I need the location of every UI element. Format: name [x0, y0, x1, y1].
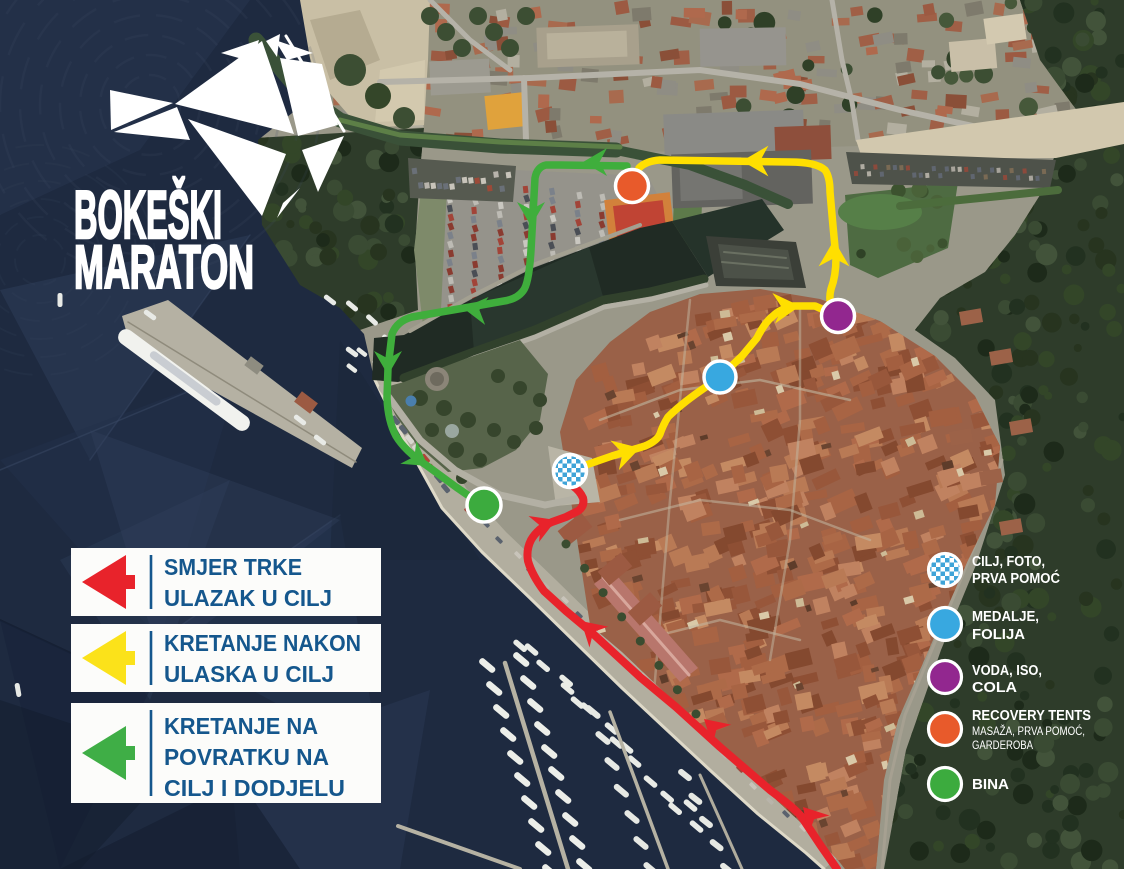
svg-text:POVRATKU NA: POVRATKU NA — [164, 744, 329, 770]
svg-text:MARATON: MARATON — [74, 233, 254, 301]
svg-text:RECOVERY TENTS: RECOVERY TENTS — [972, 708, 1091, 724]
svg-text:KRETANJE NA: KRETANJE NA — [164, 713, 318, 739]
svg-text:CILJ I DODJELU: CILJ I DODJELU — [164, 775, 345, 801]
svg-text:FOLIJA: FOLIJA — [972, 627, 1026, 643]
svg-text:COLA: COLA — [972, 680, 1018, 696]
svg-text:BINA: BINA — [972, 777, 1010, 793]
svg-text:GARDEROBA: GARDEROBA — [972, 740, 1033, 752]
svg-text:VODA, ISO,: VODA, ISO, — [972, 663, 1042, 679]
svg-text:PRVA POMOĆ: PRVA POMOĆ — [972, 569, 1060, 587]
svg-text:MEDALJE,: MEDALJE, — [972, 609, 1039, 625]
svg-text:CILJ, FOTO,: CILJ, FOTO, — [972, 554, 1045, 570]
svg-text:ULASKA U CILJ: ULASKA U CILJ — [164, 661, 334, 687]
svg-text:KRETANJE NAKON: KRETANJE NAKON — [164, 630, 361, 656]
svg-text:SMJER TRKE: SMJER TRKE — [164, 554, 302, 580]
svg-text:MASAŽA, PRVA POMOĆ,: MASAŽA, PRVA POMOĆ, — [972, 725, 1085, 738]
svg-text:ULAZAK U CILJ: ULAZAK U CILJ — [164, 585, 332, 611]
